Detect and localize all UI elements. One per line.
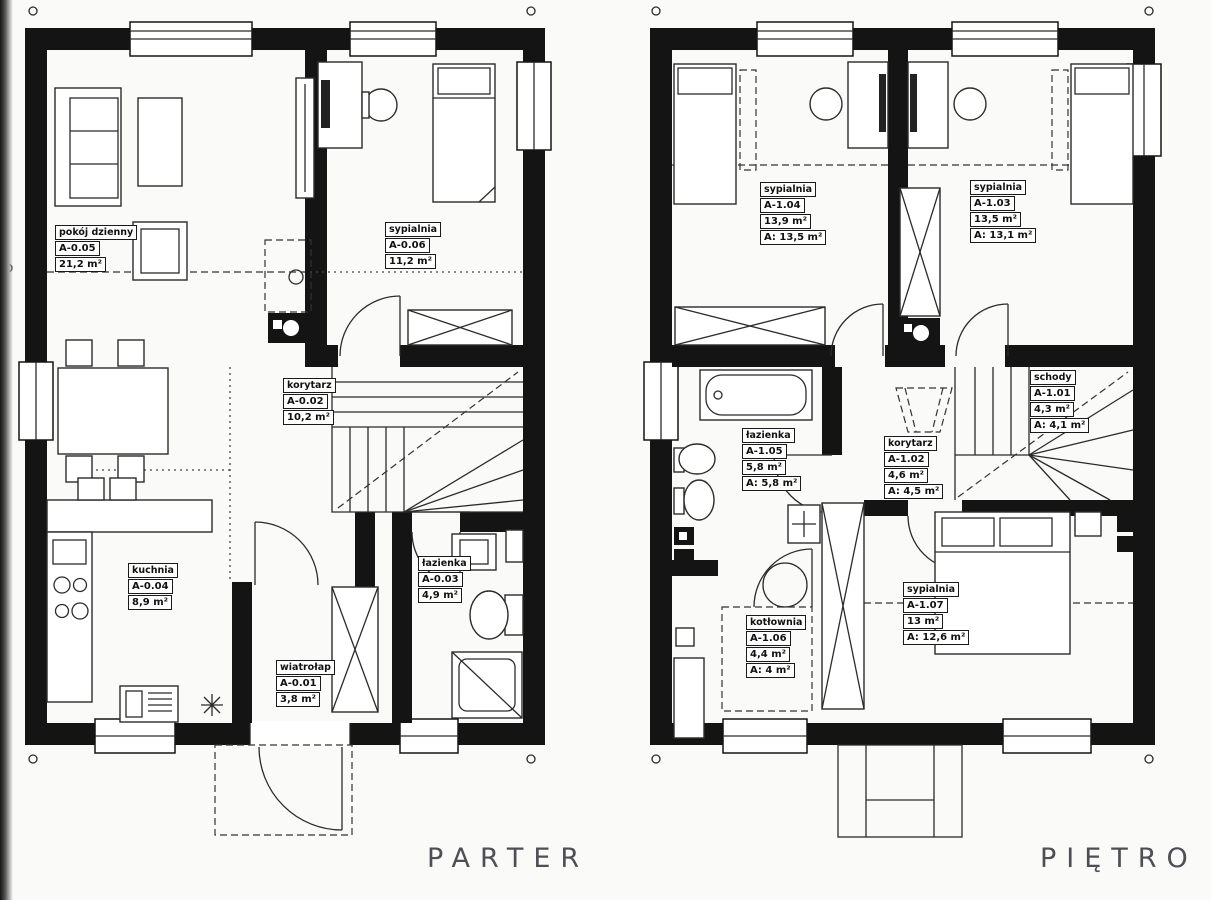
room-area: 11,2 m²: [385, 254, 436, 269]
room-label-a-1-04: sypialnia A-1.04 13,9 m² A: 13,5 m²: [760, 182, 826, 245]
room-id: A-1.07: [903, 598, 948, 613]
room-area-net: A: 4,5 m²: [884, 484, 943, 499]
room-name: sypialnia: [970, 180, 1026, 195]
basin-icon: [788, 505, 820, 543]
room-name: kotłownia: [746, 615, 806, 630]
bed-icon: [1071, 64, 1133, 204]
bathtub-icon: [700, 370, 812, 420]
scan-edge-shadow: [0, 0, 13, 900]
desk-icon: [908, 62, 986, 148]
room-id: A-1.02: [884, 452, 929, 467]
room-label-a-1-03: sypialnia A-1.03 13,5 m² A: 13,1 m²: [970, 180, 1036, 243]
room-area-net: A: 13,5 m²: [760, 230, 826, 245]
room-id: A-0.05: [55, 241, 100, 256]
chimney-dashed: [265, 240, 311, 312]
room-id: A-1.04: [760, 198, 805, 213]
room-label-a-0-01: wiatrołap A-0.01 3,8 m²: [276, 660, 335, 707]
room-area: 5,8 m²: [742, 460, 786, 475]
room-area-net: A: 5,8 m²: [742, 476, 801, 491]
room-label-a-1-05: łazienka A-1.05 5,8 m² A: 5,8 m²: [742, 428, 801, 491]
room-label-a-0-06: sypialnia A-0.06 11,2 m²: [385, 222, 441, 269]
desk-icon: [318, 62, 362, 148]
room-area-net: A: 13,1 m²: [970, 228, 1036, 243]
room-id: A-0.03: [418, 572, 463, 587]
chimney-block: [268, 313, 310, 343]
room-area: 3,8 m²: [276, 692, 320, 707]
mixer-blocks: [674, 527, 694, 567]
room-name: korytarz: [283, 378, 336, 393]
radiator-blocks: [1117, 516, 1133, 552]
washbasin-icon: [674, 444, 715, 474]
floor-title-parter: PARTER: [427, 843, 589, 874]
room-name: korytarz: [884, 436, 937, 451]
wardrobe-dashed: [740, 70, 756, 170]
closet-icon: [822, 503, 864, 709]
room-name: łazienka: [418, 556, 471, 571]
wardrobe-dashed: [1052, 70, 1068, 170]
shaft-icon: [900, 188, 940, 348]
closet-icon: [332, 587, 378, 712]
room-name: pokój dzienny: [55, 225, 137, 240]
room-name: sypialnia: [760, 182, 816, 197]
toilet-icon: [470, 591, 523, 639]
toilet-icon: [674, 480, 714, 520]
room-label-a-0-03: łazienka A-0.03 4,9 m²: [418, 556, 471, 603]
floorplan-canvas: pokój dzienny A-0.05 21,2 m² sypialnia A…: [0, 0, 1211, 900]
room-area: 4,9 m²: [418, 588, 462, 603]
room-area: 21,2 m²: [55, 257, 106, 272]
desk-icon: [810, 62, 888, 148]
room-id: A-1.06: [746, 631, 791, 646]
room-area: 4,6 m²: [884, 468, 928, 483]
coffee-table-icon: [138, 98, 182, 186]
shower-icon: [452, 652, 522, 718]
room-id: A-1.01: [1030, 386, 1075, 401]
sofa-icon: [55, 88, 121, 206]
room-area: 13 m²: [903, 614, 943, 629]
bed-icon: [433, 64, 495, 202]
room-name: wiatrołap: [276, 660, 335, 675]
room-name: sypialnia: [385, 222, 441, 237]
door-arc: [255, 522, 318, 585]
room-name: sypialnia: [903, 582, 959, 597]
room-label-a-1-07: sypialnia A-1.07 13 m² A: 12,6 m²: [903, 582, 969, 645]
room-id: A-1.03: [970, 196, 1015, 211]
room-area: 4,3 m²: [1030, 402, 1074, 417]
room-name: kuchnia: [128, 563, 178, 578]
wardrobe-icon: [408, 310, 512, 345]
stairs-icon: [332, 367, 523, 512]
room-label-a-1-02: korytarz A-1.02 4,6 m² A: 4,5 m²: [884, 436, 943, 499]
porch-roof: [838, 745, 962, 837]
room-id: A-1.05: [742, 444, 787, 459]
room-area: 13,5 m²: [970, 212, 1021, 227]
room-label-a-0-05: pokój dzienny A-0.05 21,2 m²: [55, 225, 137, 272]
room-area: 8,9 m²: [128, 595, 172, 610]
room-area-net: A: 4,1 m²: [1030, 418, 1089, 433]
parter-floorplan: [4, 7, 551, 835]
nightstand-icon: [1075, 512, 1101, 536]
door-arc: [340, 296, 400, 356]
room-id: A-0.06: [385, 238, 430, 253]
washer-icon: [120, 686, 178, 722]
room-label-a-1-01: schody A-1.01 4,3 m² A: 4,1 m²: [1030, 370, 1089, 433]
room-label-a-0-04: kuchnia A-0.04 8,9 m²: [128, 563, 178, 610]
room-label-a-1-06: kotłownia A-1.06 4,4 m² A: 4 m²: [746, 615, 806, 678]
room-area-net: A: 12,6 m²: [903, 630, 969, 645]
floorplan-drawing: [0, 0, 1211, 900]
room-area-net: A: 4 m²: [746, 663, 795, 678]
door-arc: [956, 304, 1008, 356]
room-area: 13,9 m²: [760, 214, 811, 229]
room-area: 4,4 m²: [746, 647, 790, 662]
room-name: łazienka: [742, 428, 795, 443]
desk-chair-icon: [362, 89, 397, 121]
roof-window-outline: [896, 388, 952, 432]
room-area: 10,2 m²: [283, 410, 334, 425]
room-id: A-0.02: [283, 394, 328, 409]
room-id: A-0.01: [276, 676, 321, 691]
room-name: schody: [1030, 370, 1076, 385]
desk-chair-icon: [810, 88, 842, 120]
room-label-a-0-02: korytarz A-0.02 10,2 m²: [283, 378, 336, 425]
desk-chair-icon: [954, 88, 986, 120]
tv-cabinet-icon: [296, 78, 314, 198]
wardrobe-icon: [675, 307, 825, 345]
bed-icon: [674, 64, 736, 204]
room-id: A-0.04: [128, 579, 173, 594]
armchair-icon: [133, 222, 187, 280]
floor-title-pietro: PIĘTRO: [1040, 843, 1198, 874]
door-arc: [259, 747, 342, 830]
door-arc: [831, 304, 883, 356]
dining-table-icon: [58, 340, 168, 482]
porch-outline: [215, 745, 352, 835]
snowflake-icon: [201, 694, 223, 716]
